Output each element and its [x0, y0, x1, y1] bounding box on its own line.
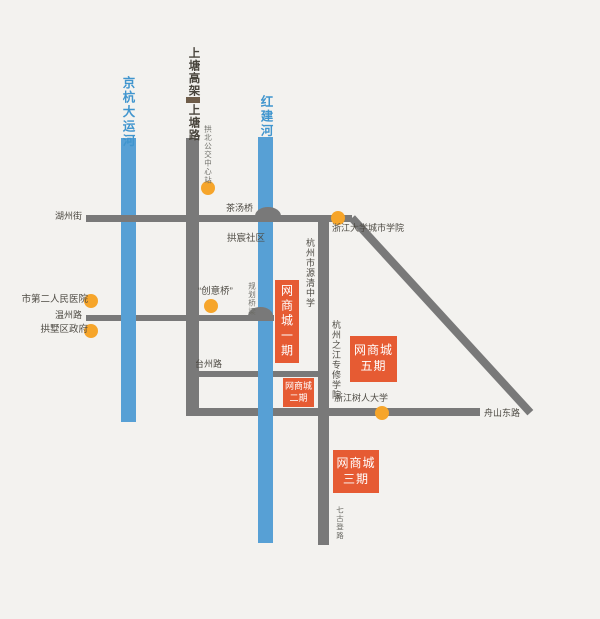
site-phase1-label: 网商城一期: [279, 284, 296, 359]
wenzhou-road-label: 温州路: [40, 311, 82, 321]
diagonal-road-line: [349, 215, 533, 415]
zju-city-college-label: 浙江大学城市学院: [332, 224, 404, 234]
site-phase2-label-line1: 网商城: [285, 381, 312, 392]
shuren-university-marker: [375, 406, 389, 420]
site-phase1-box: 网商城一期: [275, 280, 299, 363]
gongchen-community-label: 拱宸社区: [227, 234, 265, 244]
huzhou-street-label: 湖州街: [40, 212, 82, 222]
shangtang-road-label: 上塘路: [187, 104, 199, 142]
creative-bridge-marker: [204, 299, 218, 313]
zhoushan-east-road-label: 舟山东路: [484, 409, 520, 419]
site-phase5-label-line1: 网商城: [354, 343, 393, 359]
site-phase5-box: 网商城 五期: [350, 336, 397, 382]
yuanqing-school-label: 杭州市源清中学: [305, 238, 314, 308]
chatang-bridge-label: 茶汤桥: [226, 204, 253, 214]
qigudeng-road-line: [318, 216, 329, 545]
chatang-bridge-arch: [255, 207, 281, 216]
hongjian-river-label: 红建河: [259, 95, 272, 139]
location-map: 京杭大运河 红建河 上塘高架 上塘路 湖州街 温州路 台州路 舟山东路 七古登路…: [0, 0, 600, 619]
site-phase3-label-line1: 网商城: [336, 456, 375, 472]
viaduct-dash-icon: [186, 97, 200, 103]
zhoushan-east-road-line: [186, 408, 480, 416]
site-phase3-box: 网商城 三期: [333, 450, 379, 493]
site-phase3-label-line2: 三期: [343, 472, 369, 488]
planned-bridge-label: 规划桥梁: [248, 282, 256, 316]
zhijiang-college-label: 杭州之江专修学院: [331, 320, 340, 400]
taizhou-road-label: 台州路: [195, 360, 222, 370]
hongjian-river: [258, 137, 273, 543]
gongbei-bus-center-label: 拱北公交中心站: [204, 125, 212, 185]
creative-bridge-label: “创意桥”: [198, 287, 233, 297]
grand-canal-label: 京杭大运河: [121, 76, 134, 149]
shangtang-viaduct-label: 上塘高架: [187, 47, 199, 97]
site-phase5-label-line2: 五期: [360, 359, 386, 375]
site-phase2-label-line2: 二期: [289, 393, 307, 404]
gongshu-government-label: 拱墅区政府: [18, 325, 88, 335]
chatang-bridge-deck: [254, 215, 280, 222]
qigudeng-road-label: 七古登路: [336, 506, 344, 540]
grand-canal-river: [121, 138, 136, 422]
second-hospital-label: 市第二人民医院: [18, 295, 88, 305]
site-phase2-box: 网商城 二期: [283, 378, 314, 407]
wenzhou-road-line: [86, 315, 274, 321]
huzhou-canal-bridge-deck: [119, 215, 138, 222]
shuren-university-label: 浙江树人大学: [334, 394, 388, 404]
